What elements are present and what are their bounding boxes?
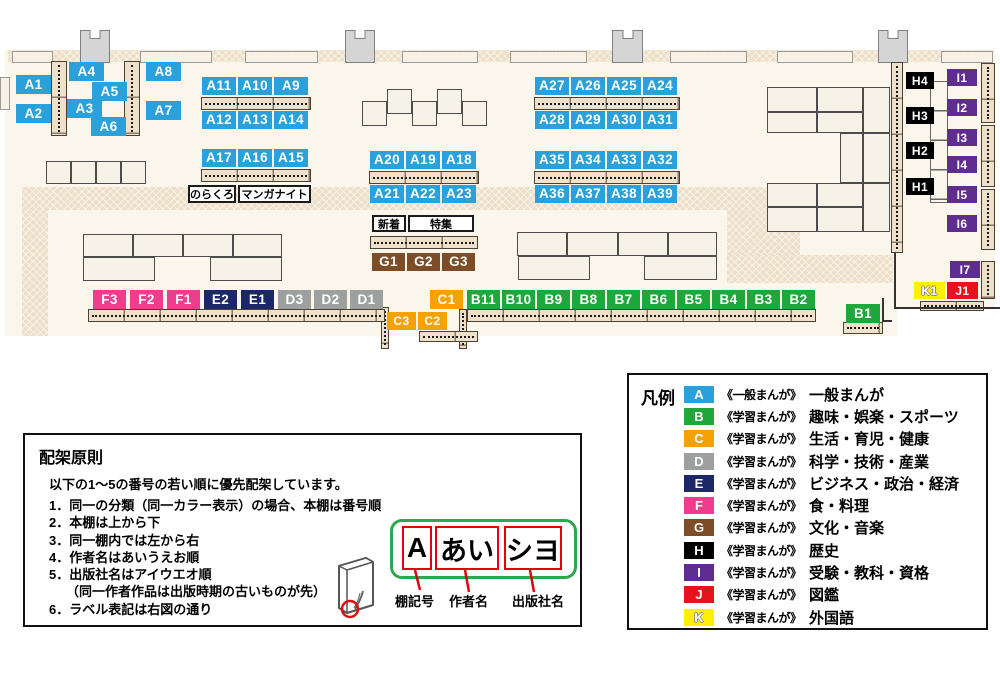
walkway-hatch xyxy=(727,255,893,283)
label-segment-text: A xyxy=(407,532,427,564)
shelf-label-I6: I6 xyxy=(947,215,977,232)
bookshelf-vertical xyxy=(459,309,467,349)
legend-source: 《学習まんが》 xyxy=(721,475,809,492)
shelf-label-A27: A27 xyxy=(535,77,569,95)
legend-row-B: B《学習まんが》趣味・娯楽・スポーツ xyxy=(684,405,980,427)
legend-row-I: I《学習まんが》受験・教科・資格 xyxy=(684,561,980,583)
shelf-label-A25: A25 xyxy=(607,77,641,95)
legend-category: 受験・教科・資格 xyxy=(809,562,929,583)
reading-table xyxy=(387,89,412,114)
shelf-label-A38: A38 xyxy=(607,185,641,203)
shelf-label-A3: A3 xyxy=(67,99,102,118)
reading-table xyxy=(767,183,817,207)
wall-counter xyxy=(0,77,10,110)
wall-counter xyxy=(777,51,853,63)
shelf-label-A13: A13 xyxy=(238,111,272,129)
shelf-label-H3: H3 xyxy=(906,107,934,124)
reading-table xyxy=(133,234,183,257)
bookshelf-horizontal xyxy=(201,169,311,182)
reading-table xyxy=(644,256,717,280)
reading-table xyxy=(518,256,590,280)
shelf-label-A23: A23 xyxy=(442,185,476,203)
shelf-label-F1: F1 xyxy=(167,290,200,309)
legend-chip: E xyxy=(684,475,714,492)
principles-intro: 以下の1～5の番号の若い順に優先配架しています。 xyxy=(49,474,348,493)
wall-counter xyxy=(402,51,478,63)
bookshelf-horizontal xyxy=(467,309,816,322)
wall-counter xyxy=(510,51,587,63)
reading-table xyxy=(183,234,233,257)
legend-source: 《学習まんが》 xyxy=(721,586,809,603)
legend-source: 《一般まんが》 xyxy=(721,386,809,403)
legend-source: 《学習まんが》 xyxy=(721,408,809,425)
legend-row-E: E《学習まんが》ビジネス・政治・経済 xyxy=(684,472,980,494)
shelf-label-E1: E1 xyxy=(241,290,274,309)
reading-table xyxy=(517,232,567,256)
shelf-label-A18: A18 xyxy=(442,151,476,169)
legend-box: 凡例 A《一般まんが》一般まんがB《学習まんが》趣味・娯楽・スポーツC《学習まん… xyxy=(627,373,988,630)
book-icon xyxy=(330,553,382,619)
legend-chip: J xyxy=(684,586,714,603)
shelf-label-A16: A16 xyxy=(238,149,272,167)
shelf-label-D2: D2 xyxy=(314,290,347,309)
legend-chip: A xyxy=(684,386,714,403)
legend-list: A《一般まんが》一般まんがB《学習まんが》趣味・娯楽・スポーツC《学習まんが》生… xyxy=(684,383,980,628)
legend-category: ビジネス・政治・経済 xyxy=(809,473,959,494)
shelf-label-A20: A20 xyxy=(370,151,404,169)
bookshelf-horizontal xyxy=(201,97,311,110)
legend-row-H: H《学習まんが》歴史 xyxy=(684,539,980,561)
shelf-label-B2: B2 xyxy=(782,290,815,309)
legend-category: 科学・技術・産業 xyxy=(809,451,929,472)
legend-source: 《学習まんが》 xyxy=(721,519,809,536)
reading-table xyxy=(462,101,487,126)
wall-line xyxy=(882,320,892,322)
shelf-label-F3: F3 xyxy=(93,290,126,309)
shelf-label-A34: A34 xyxy=(571,151,605,169)
shelf-label-C2: C2 xyxy=(418,312,447,330)
callout-sign: マンガナイト xyxy=(238,185,311,203)
shelf-label-H1: H1 xyxy=(906,178,934,195)
legend-category: 外国語 xyxy=(809,607,854,628)
legend-category: 図鑑 xyxy=(809,584,839,605)
legend-row-A: A《一般まんが》一般まんが xyxy=(684,383,980,405)
shelf-label-H2: H2 xyxy=(906,142,934,159)
label-segment-publisher: シヨ xyxy=(504,526,562,570)
shelf-label-A28: A28 xyxy=(535,111,569,129)
shelf-label-A12: A12 xyxy=(202,111,236,129)
legend-category: 趣味・娯楽・スポーツ xyxy=(809,406,959,427)
reading-table xyxy=(817,87,863,112)
principles-box: 配架原則 以下の1～5の番号の若い順に優先配架しています。 1．同一の分類（同一… xyxy=(23,433,582,627)
bookshelf-horizontal xyxy=(534,171,680,184)
shelf-label-A8: A8 xyxy=(146,62,181,81)
shelf-label-A21: A21 xyxy=(370,185,404,203)
shelf-label-A37: A37 xyxy=(571,185,605,203)
shelf-label-A39: A39 xyxy=(643,185,677,203)
shelf-label-J1: J1 xyxy=(947,282,978,299)
principles-item: 2．本棚は上から下 xyxy=(49,514,379,531)
bookshelf-horizontal xyxy=(920,301,984,311)
principles-title: 配架原則 xyxy=(39,444,103,468)
shelf-label-A9: A9 xyxy=(274,77,308,95)
floor-map: A1A2A4A5A3A6A8A7A11A10A9A12A13A14A17A16A… xyxy=(0,0,1000,370)
shelf-label-A35: A35 xyxy=(535,151,569,169)
principles-item: 1．同一の分類（同一カラー表示）の場合、本棚は番号順 xyxy=(49,497,379,514)
bookshelf-vertical xyxy=(891,62,903,253)
reading-table xyxy=(46,161,71,184)
principles-item: 3．同一棚内では左から右 xyxy=(49,532,379,549)
reading-table xyxy=(71,161,96,184)
bookshelf-vertical xyxy=(981,261,995,299)
reading-table xyxy=(362,101,387,126)
bookshelf-horizontal xyxy=(843,322,883,334)
shelf-label-A6: A6 xyxy=(91,117,126,136)
legend-row-F: F《学習まんが》食・料理 xyxy=(684,494,980,516)
legend-chip: G xyxy=(684,519,714,536)
bookshelf-vertical xyxy=(981,63,995,123)
legend-category: 一般まんが xyxy=(809,384,884,405)
label-segment-text: あい xyxy=(440,529,494,568)
shelf-label-A26: A26 xyxy=(571,77,605,95)
shelf-label-G1: G1 xyxy=(372,253,405,271)
legend-chip: F xyxy=(684,497,714,514)
wall-counter xyxy=(245,51,318,63)
shelf-label-I3: I3 xyxy=(947,129,977,146)
legend-source: 《学習まんが》 xyxy=(721,609,809,626)
legend-category: 歴史 xyxy=(809,540,839,561)
reading-table xyxy=(863,133,890,183)
shelf-label-A32: A32 xyxy=(643,151,677,169)
reading-table xyxy=(863,87,890,133)
wall-counter xyxy=(12,51,53,63)
shelf-label-B1: B1 xyxy=(846,304,880,323)
bookshelf-vertical xyxy=(981,125,995,187)
shelf-label-A24: A24 xyxy=(643,77,677,95)
shelf-label-B9: B9 xyxy=(537,290,570,309)
shelf-label-B10: B10 xyxy=(502,290,535,309)
legend-chip: H xyxy=(684,542,714,559)
reading-table xyxy=(121,161,146,184)
shelf-label-I7: I7 xyxy=(950,261,980,278)
legend-row-J: J《学習まんが》図鑑 xyxy=(684,584,980,606)
shelf-label-A36: A36 xyxy=(535,185,569,203)
caption-author: 作者名 xyxy=(449,591,488,610)
shelf-label-B6: B6 xyxy=(642,290,675,309)
legend-source: 《学習まんが》 xyxy=(721,453,809,470)
reading-table xyxy=(863,183,890,232)
reading-table xyxy=(767,112,817,133)
reading-table xyxy=(437,89,462,114)
floor-map-page: A1A2A4A5A3A6A8A7A11A10A9A12A13A14A17A16A… xyxy=(0,0,1000,700)
reading-table xyxy=(618,232,668,256)
shelf-label-A29: A29 xyxy=(571,111,605,129)
legend-category: 生活・育児・健康 xyxy=(809,428,929,449)
shelf-label-C1: C1 xyxy=(430,290,463,309)
callout-sign: 新着 xyxy=(372,215,406,232)
shelf-label-B3: B3 xyxy=(747,290,780,309)
pillar xyxy=(80,30,110,63)
shelf-label-B8: B8 xyxy=(572,290,605,309)
pillar xyxy=(345,30,375,63)
shelf-label-A19: A19 xyxy=(406,151,440,169)
shelf-label-B11: B11 xyxy=(467,290,500,309)
label-segment-shelf-code: A xyxy=(402,526,432,570)
shelf-label-A1: A1 xyxy=(16,75,51,94)
callout-sign: のらくろ xyxy=(188,185,236,203)
shelf-label-I5: I5 xyxy=(947,186,977,203)
reading-table xyxy=(83,234,133,257)
reading-table xyxy=(840,133,863,183)
shelf-label-A10: A10 xyxy=(238,77,272,95)
legend-chip: K xyxy=(684,609,714,626)
caption-shelf-code: 棚記号 xyxy=(395,591,434,610)
legend-row-G: G《学習まんが》文化・音楽 xyxy=(684,517,980,539)
wall-line xyxy=(894,307,1000,309)
bookshelf-horizontal xyxy=(88,309,385,322)
reading-table xyxy=(668,232,717,256)
reading-table xyxy=(817,112,863,133)
legend-title: 凡例 xyxy=(641,384,675,409)
reading-table xyxy=(233,234,282,257)
legend-source: 《学習まんが》 xyxy=(721,430,809,447)
bookshelf-horizontal xyxy=(369,171,479,184)
shelf-label-I2: I2 xyxy=(947,99,977,116)
reading-table xyxy=(83,257,155,281)
shelf-label-C3: C3 xyxy=(387,312,416,330)
wall-counter xyxy=(670,51,747,63)
shelf-label-A17: A17 xyxy=(202,149,236,167)
legend-category: 食・料理 xyxy=(809,495,869,516)
shelf-label-B5: B5 xyxy=(677,290,710,309)
reading-table xyxy=(817,207,863,232)
label-segment-text: シヨ xyxy=(506,529,560,568)
legend-source: 《学習まんが》 xyxy=(721,497,809,514)
legend-source: 《学習まんが》 xyxy=(721,542,809,559)
shelf-label-F2: F2 xyxy=(130,290,163,309)
reading-table xyxy=(412,101,437,126)
bookshelf-horizontal xyxy=(370,236,478,249)
legend-chip: C xyxy=(684,430,714,447)
bookshelf-vertical xyxy=(51,61,67,136)
shelf-label-A31: A31 xyxy=(643,111,677,129)
shelf-label-A15: A15 xyxy=(274,149,308,167)
shelf-label-I4: I4 xyxy=(947,156,977,173)
reading-table xyxy=(96,161,121,184)
shelf-label-A22: A22 xyxy=(406,185,440,203)
shelf-label-H4: H4 xyxy=(906,72,934,89)
shelf-label-A2: A2 xyxy=(16,104,51,123)
reading-table xyxy=(567,232,618,256)
pillar xyxy=(612,30,643,63)
shelf-label-A33: A33 xyxy=(607,151,641,169)
legend-row-D: D《学習まんが》科学・技術・産業 xyxy=(684,450,980,472)
bookshelf-horizontal xyxy=(419,331,478,342)
shelf-label-B4: B4 xyxy=(712,290,745,309)
legend-row-K: K《学習まんが》外国語 xyxy=(684,606,980,628)
shelf-label-A7: A7 xyxy=(146,101,181,120)
legend-category: 文化・音楽 xyxy=(809,517,884,538)
wall-line xyxy=(882,298,884,322)
pillar xyxy=(878,30,908,63)
reading-table xyxy=(817,183,863,207)
shelf-label-G3: G3 xyxy=(442,253,475,271)
reading-table xyxy=(210,257,282,281)
legend-chip: B xyxy=(684,408,714,425)
legend-row-C: C《学習まんが》生活・育児・健康 xyxy=(684,428,980,450)
shelf-label-B7: B7 xyxy=(607,290,640,309)
shelf-label-G2: G2 xyxy=(407,253,440,271)
bookshelf-horizontal xyxy=(534,97,680,110)
reading-table xyxy=(767,87,817,112)
reading-table xyxy=(767,207,817,232)
shelf-label-I1: I1 xyxy=(947,69,977,86)
wall-counter xyxy=(941,51,993,63)
shelf-label-A4: A4 xyxy=(69,62,104,81)
shelf-label-A11: A11 xyxy=(202,77,236,95)
shelf-label-E2: E2 xyxy=(204,290,237,309)
legend-source: 《学習まんが》 xyxy=(721,564,809,581)
floor-edge-mask xyxy=(897,310,1000,340)
shelf-label-D3: D3 xyxy=(278,290,311,309)
shelf-label-D1: D1 xyxy=(350,290,383,309)
shelf-label-A30: A30 xyxy=(607,111,641,129)
shelf-label-A14: A14 xyxy=(274,111,308,129)
legend-chip: D xyxy=(684,453,714,470)
bookshelf-vertical xyxy=(981,189,995,250)
wall-line xyxy=(894,253,896,309)
legend-chip: I xyxy=(684,564,714,581)
callout-sign: 特集 xyxy=(408,215,474,232)
shelf-label-K1: K1 xyxy=(914,282,945,299)
caption-publisher: 出版社名 xyxy=(512,591,564,610)
label-segment-author: あい xyxy=(435,526,499,570)
